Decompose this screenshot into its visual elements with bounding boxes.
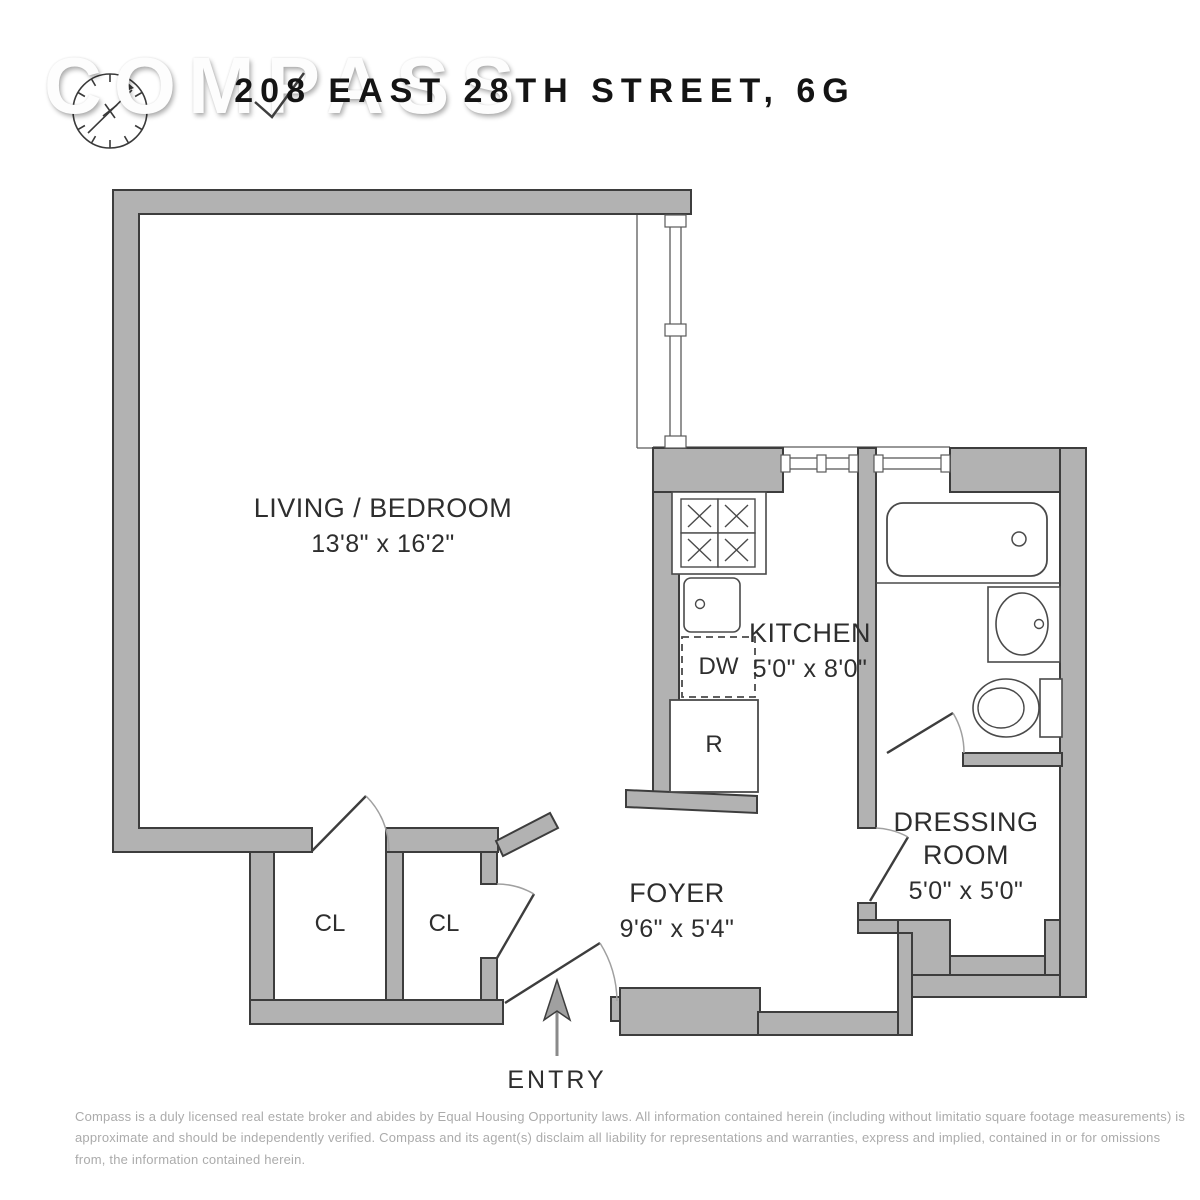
room-label-living-bedroom: LIVING / BEDROOM 13'8" x 16'2" <box>233 492 533 559</box>
room-label-closet-right: CL <box>404 910 484 938</box>
room-dims: 5'0" x 5'0" <box>880 877 1052 906</box>
bathroom-sink-icon <box>988 587 1060 662</box>
room-dims: 5'0" x 8'0" <box>735 655 885 684</box>
room-label-closet-left: CL <box>290 910 370 938</box>
walls <box>113 190 1086 1035</box>
kitchen-sink-icon <box>684 578 740 632</box>
entry-label: ENTRY <box>497 1066 617 1095</box>
room-dims: 13'8" x 16'2" <box>233 530 533 559</box>
compass-check-icon <box>0 0 1200 1200</box>
doors <box>312 713 964 1003</box>
window-face-lines <box>637 215 950 448</box>
floor-plan <box>0 0 1200 1200</box>
refrigerator-label: R <box>670 731 758 759</box>
room-dims: 9'6" x 5'4" <box>602 915 752 944</box>
room-label-foyer: FOYER 9'6" x 5'4" <box>602 877 752 944</box>
bathroom-door <box>887 713 953 753</box>
bathroom-fixtures <box>876 503 1062 737</box>
disclaimer-line-1: Compass is a duly licensed real estate b… <box>75 1106 1175 1127</box>
disclaimer: Compass is a duly licensed real estate b… <box>75 1106 1175 1170</box>
room-name: LIVING / BEDROOM <box>233 492 533 525</box>
disclaimer-line-2: approximate and should be independently … <box>75 1127 1175 1148</box>
windows <box>665 215 950 472</box>
disclaimer-line-3: from, the information contained herein. <box>75 1149 1175 1170</box>
stove-icon <box>672 492 766 574</box>
room-name: KITCHEN <box>735 617 885 650</box>
closet-left-door <box>312 796 366 851</box>
entry-door <box>505 943 600 1003</box>
room-name: FOYER <box>602 877 752 910</box>
compass-dial-icon <box>0 0 1200 1200</box>
closet-right-door <box>497 894 534 958</box>
page-title: 208 EAST 28TH STREET, 6G <box>0 72 1090 111</box>
room-name: DRESSING ROOM <box>880 806 1052 872</box>
room-label-dressing-room: DRESSING ROOM 5'0" x 5'0" <box>880 806 1052 906</box>
bathtub-icon <box>887 503 1047 576</box>
dishwasher-label: DW <box>682 653 755 681</box>
room-label-kitchen: KITCHEN 5'0" x 8'0" <box>735 617 885 684</box>
entry-arrow-icon <box>544 980 570 1056</box>
toilet-icon <box>1040 679 1062 737</box>
